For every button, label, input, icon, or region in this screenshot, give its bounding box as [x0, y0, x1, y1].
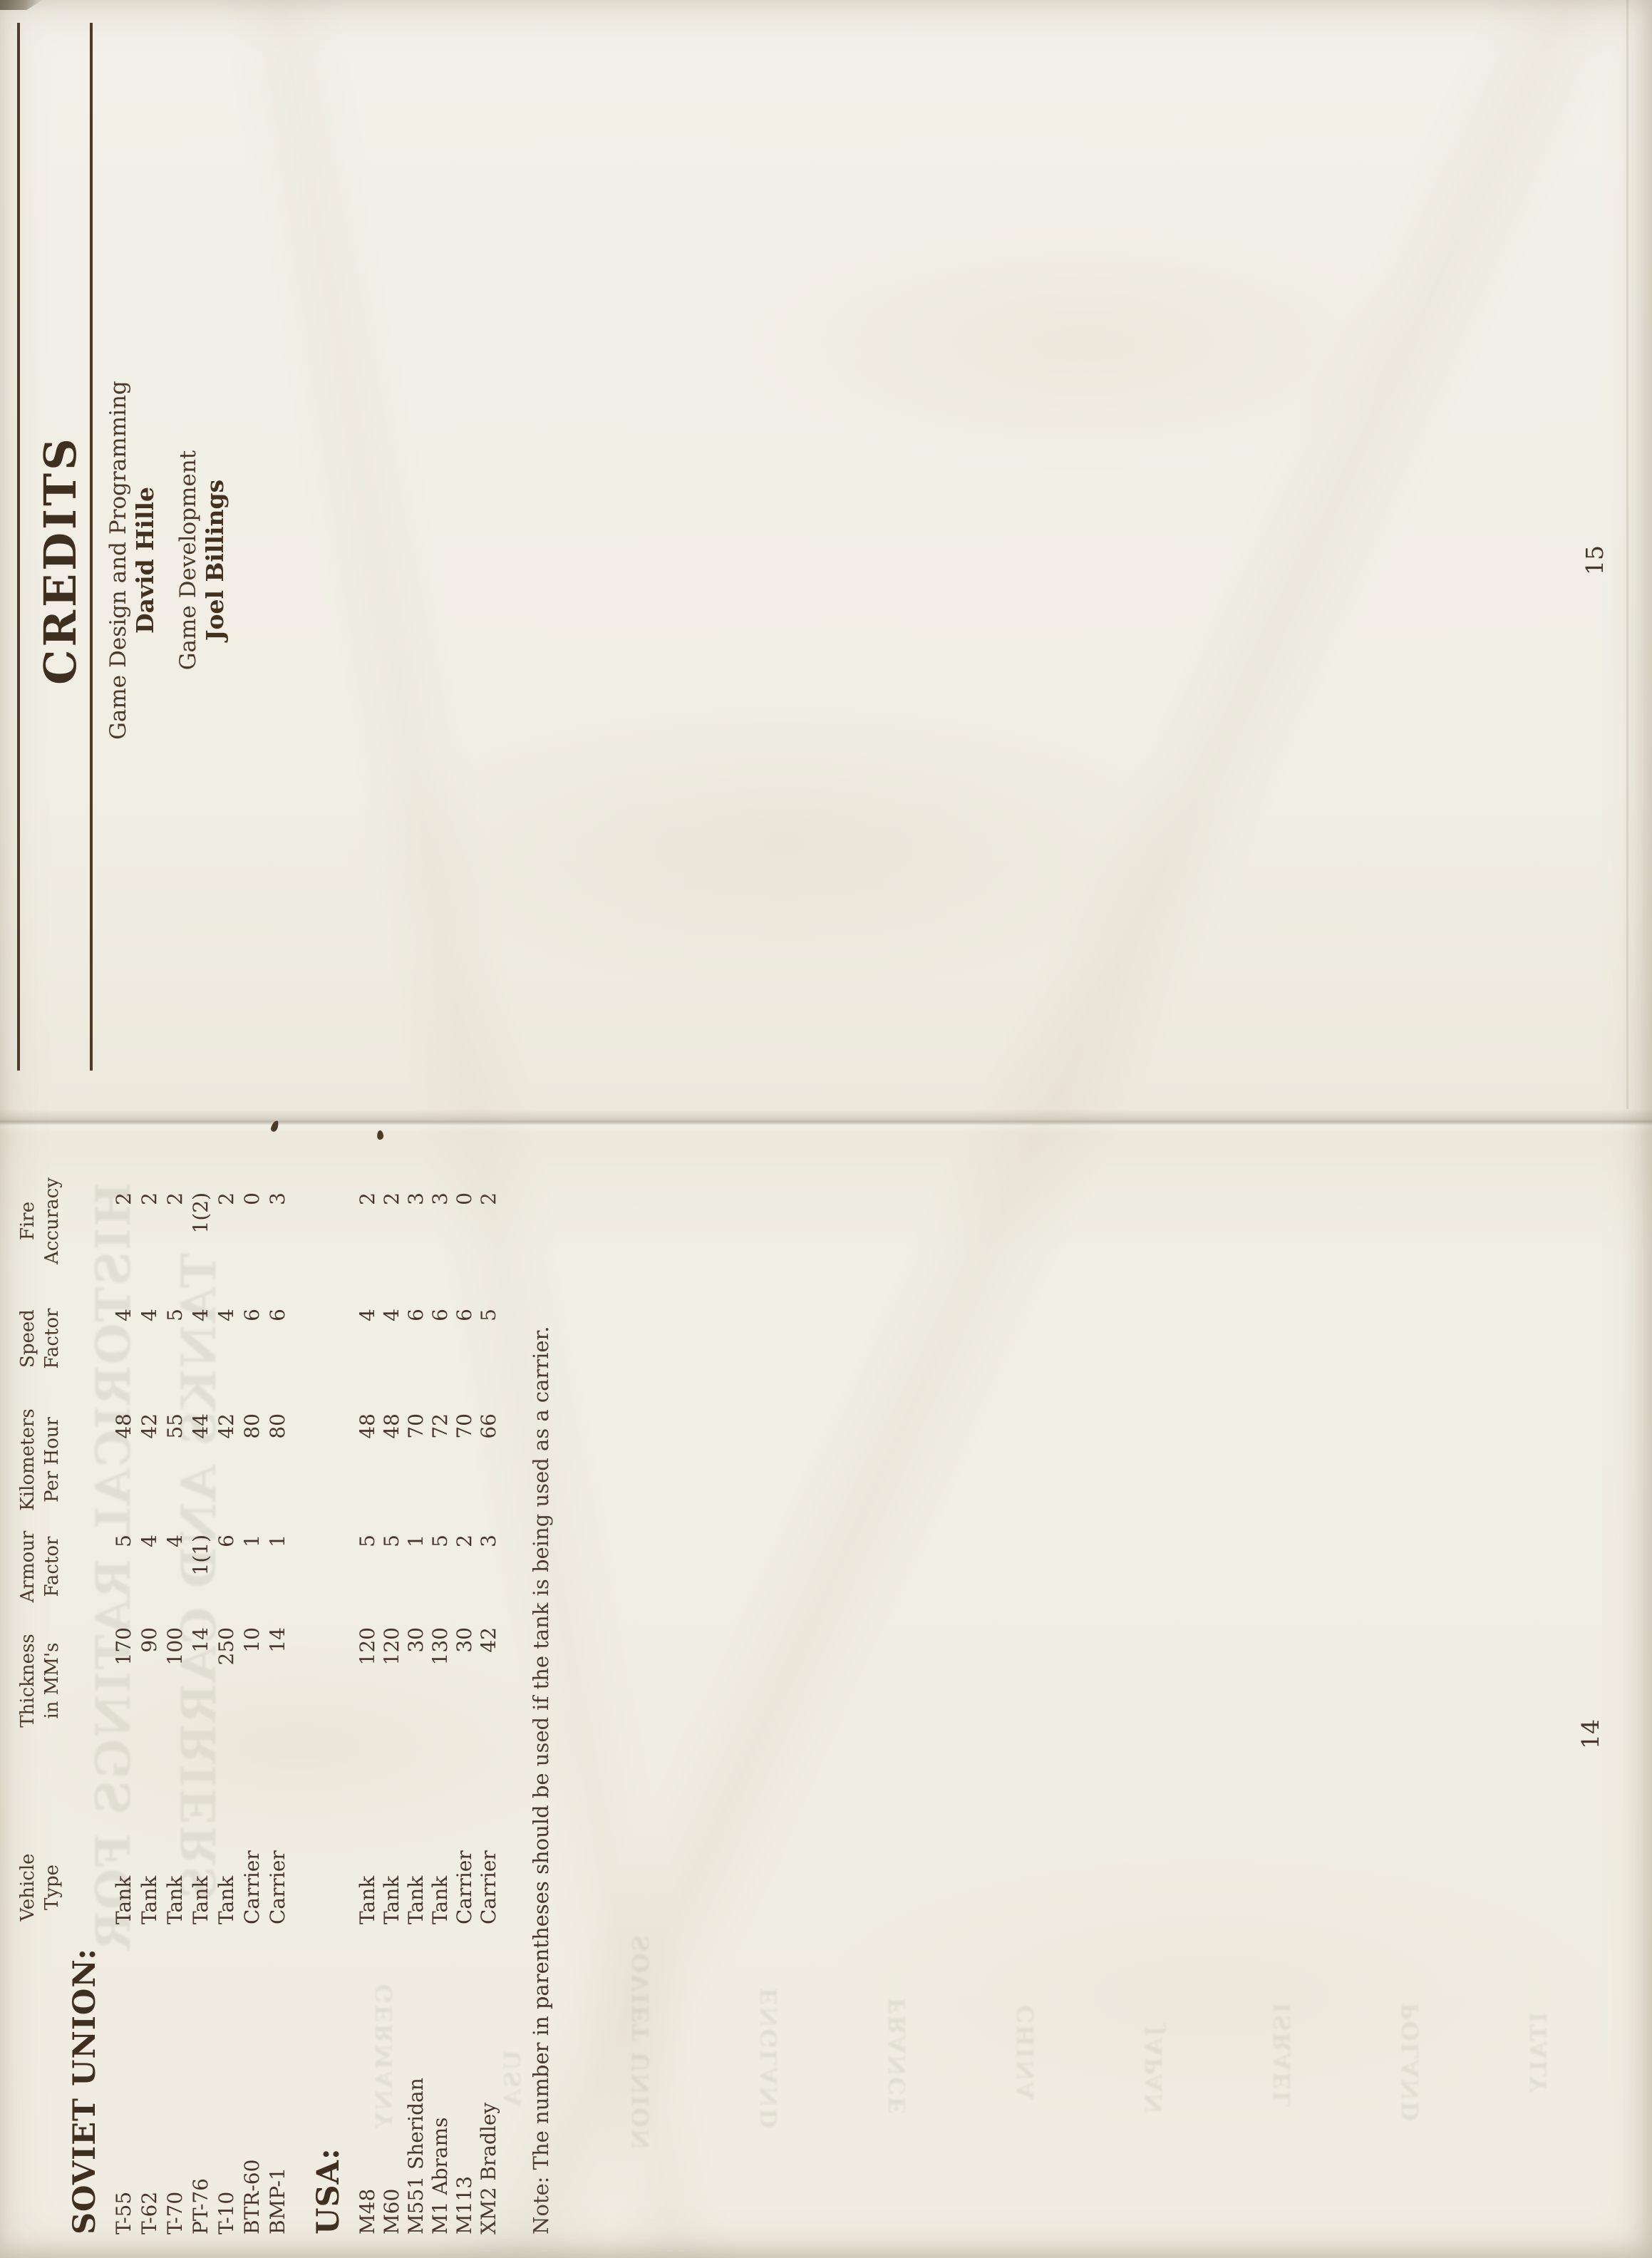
- stat-armour-factor: 1: [405, 1535, 428, 1627]
- stat-kilometers-per-hour: 66: [477, 1413, 500, 1506]
- stat-speed-factor: 4: [356, 1309, 379, 1401]
- stat-speed-factor: 6: [429, 1309, 452, 1401]
- stat-fire-accuracy: 2: [381, 1192, 403, 1285]
- page-14-content: HISTORICAL RATINGS FORTANKS AND CARRIERS…: [0, 1120, 1652, 2258]
- stat-kilometers-per-hour: 80: [241, 1413, 264, 1506]
- bleedthrough-text: FRANCE: [884, 1998, 911, 2115]
- stat-speed-factor: 4: [190, 1309, 212, 1401]
- vehicle-name: BTR-60: [241, 2160, 264, 2234]
- vehicle-name: T-10: [215, 2192, 238, 2234]
- stat-armour-factor: 5: [429, 1535, 452, 1627]
- credit-role-design: Game Design and Programming: [105, 0, 131, 1120]
- stat-fire-accuracy: 3: [267, 1192, 289, 1285]
- stat-speed-factor: 4: [138, 1309, 161, 1401]
- vehicle-type: Tank: [405, 1876, 428, 1924]
- title-rule-top: [17, 23, 20, 1071]
- stat-thickness: 90: [138, 1627, 161, 1720]
- stat-kilometers-per-hour: 80: [267, 1413, 289, 1506]
- stat-speed-factor: 5: [164, 1309, 187, 1401]
- stat-fire-accuracy: 2: [138, 1192, 161, 1285]
- stat-speed-factor: 6: [241, 1309, 264, 1401]
- stat-armour-factor: 5: [113, 1535, 135, 1627]
- vehicle-name: M48: [356, 2189, 379, 2234]
- stat-fire-accuracy: 2: [164, 1192, 187, 1285]
- stat-thickness: 14: [267, 1627, 289, 1720]
- scanned-manual-spread: CREDITS Game Design and Programming Davi…: [0, 0, 1652, 2258]
- vehicle-name: T-55: [113, 2192, 135, 2234]
- column-header-line1: Vehicle: [17, 1788, 38, 1987]
- vehicle-type: Tank: [215, 1876, 238, 1924]
- vehicle-type: Tank: [138, 1876, 161, 1924]
- credit-name-developer: Joel Billings: [201, 0, 229, 1120]
- vehicle-type: Tank: [381, 1876, 403, 1924]
- vehicle-type: Carrier: [477, 1850, 500, 1924]
- vehicle-name: M60: [381, 2189, 403, 2234]
- page-number-15: 15: [1581, 0, 1609, 1120]
- vehicle-type: Tank: [164, 1876, 187, 1924]
- vehicle-type: Tank: [190, 1876, 212, 1924]
- stat-kilometers-per-hour: 70: [405, 1413, 428, 1506]
- stat-thickness: 130: [429, 1627, 452, 1720]
- stat-armour-factor: 1: [241, 1535, 264, 1627]
- stat-speed-factor: 6: [405, 1309, 428, 1401]
- stat-thickness: 30: [453, 1627, 476, 1720]
- stat-kilometers-per-hour: 42: [215, 1413, 238, 1506]
- page-15: CREDITS Game Design and Programming Davi…: [0, 0, 1652, 1120]
- stat-kilometers-per-hour: 42: [138, 1413, 161, 1506]
- table-note: Note: The number in parentheses should b…: [529, 1326, 553, 2234]
- page-15-content: CREDITS Game Design and Programming Davi…: [0, 0, 1652, 1120]
- bleedthrough-text: ISRAEL: [1269, 2003, 1296, 2108]
- bleedthrough-text: POLAND: [1397, 2003, 1424, 2123]
- stat-speed-factor: 6: [267, 1309, 289, 1401]
- vehicle-type: Carrier: [453, 1850, 476, 1924]
- page-number-14: 14: [1576, 1592, 1604, 1877]
- stat-fire-accuracy: 2: [356, 1192, 379, 1285]
- vehicle-type: Tank: [429, 1876, 452, 1924]
- stat-fire-accuracy: 2: [215, 1192, 238, 1285]
- stat-kilometers-per-hour: 44: [190, 1413, 212, 1506]
- bleedthrough-text: ITALY: [1525, 2012, 1552, 2094]
- vehicle-type: Tank: [356, 1876, 379, 1924]
- stat-armour-factor: 6: [215, 1535, 238, 1627]
- stat-kilometers-per-hour: 48: [356, 1413, 379, 1506]
- vehicle-name: M113: [453, 2176, 476, 2234]
- bleedthrough-text: JAPAN: [1140, 2026, 1167, 2115]
- stat-speed-factor: 6: [453, 1309, 476, 1401]
- title-rule-bottom: [90, 23, 93, 1071]
- stat-thickness: 30: [405, 1627, 428, 1720]
- column-header-line2: Accuracy: [41, 1121, 63, 1321]
- stat-speed-factor: 4: [381, 1309, 403, 1401]
- stat-armour-factor: 5: [356, 1535, 379, 1627]
- vehicle-type: Carrier: [267, 1850, 289, 1924]
- vehicle-name: T-70: [164, 2192, 187, 2234]
- vehicle-type: Tank: [113, 1876, 135, 1924]
- stat-thickness: 100: [164, 1627, 187, 1720]
- credit-name-designer: David Hille: [131, 0, 159, 1120]
- stat-armour-factor: 4: [138, 1535, 161, 1627]
- stat-fire-accuracy: 3: [405, 1192, 428, 1285]
- stat-thickness: 10: [241, 1627, 264, 1720]
- stat-fire-accuracy: 3: [429, 1192, 452, 1285]
- stat-kilometers-per-hour: 70: [453, 1413, 476, 1506]
- bleedthrough-text: SOVIET UNION: [627, 1935, 654, 2151]
- vehicle-type: Carrier: [241, 1850, 264, 1924]
- section-label-usa: USA:: [311, 2148, 346, 2234]
- stat-thickness: 42: [477, 1627, 500, 1720]
- stat-speed-factor: 5: [477, 1309, 500, 1401]
- column-header-line1: Fire: [17, 1121, 38, 1321]
- stat-armour-factor: 2: [453, 1535, 476, 1627]
- stat-thickness: 250: [215, 1627, 238, 1720]
- bleedthrough-text: USA: [499, 2050, 526, 2108]
- section-label-soviet-union: SOVIET UNION:: [67, 1948, 103, 2234]
- stat-thickness: 120: [356, 1627, 379, 1720]
- column-header-line2: Type: [41, 1788, 63, 1987]
- stat-fire-accuracy: 0: [453, 1192, 476, 1285]
- stat-kilometers-per-hour: 48: [113, 1413, 135, 1506]
- vehicle-name: M1 Abrams: [429, 2117, 452, 2234]
- page-title-credits: CREDITS: [34, 0, 86, 1120]
- stat-armour-factor: 3: [477, 1535, 500, 1627]
- stat-kilometers-per-hour: 72: [429, 1413, 452, 1506]
- stat-kilometers-per-hour: 48: [381, 1413, 403, 1506]
- stat-speed-factor: 4: [113, 1309, 135, 1401]
- stat-speed-factor: 4: [215, 1309, 238, 1401]
- stat-fire-accuracy: 0: [241, 1192, 264, 1285]
- vehicle-name: PT-76: [190, 2178, 212, 2234]
- stat-armour-factor: 1: [267, 1535, 289, 1627]
- stat-thickness: 120: [381, 1627, 403, 1720]
- stat-thickness: 170: [113, 1627, 135, 1720]
- vehicle-name: XM2 Bradley: [477, 2103, 500, 2234]
- stat-fire-accuracy: 1(2): [190, 1192, 212, 1285]
- stat-armour-factor: 5: [381, 1535, 403, 1627]
- stat-thickness: 14: [190, 1627, 212, 1720]
- bleedthrough-text: GERMANY: [371, 1984, 398, 2130]
- stat-kilometers-per-hour: 55: [164, 1413, 187, 1506]
- page-14: HISTORICAL RATINGS FORTANKS AND CARRIERS…: [0, 1120, 1652, 2258]
- stat-armour-factor: 4: [164, 1535, 187, 1627]
- stat-armour-factor: 1(1): [190, 1535, 212, 1627]
- vehicle-name: BMP-1: [267, 2167, 289, 2234]
- vehicle-name: M551 Sheridan: [405, 2078, 428, 2234]
- credit-role-development: Game Development: [175, 0, 201, 1120]
- stat-fire-accuracy: 2: [477, 1192, 500, 1285]
- stat-fire-accuracy: 2: [113, 1192, 135, 1285]
- bleedthrough-text: ENGLAND: [755, 1988, 783, 2130]
- vehicle-name: T-62: [138, 2192, 161, 2234]
- bleedthrough-text: CHINA: [1012, 2005, 1039, 2101]
